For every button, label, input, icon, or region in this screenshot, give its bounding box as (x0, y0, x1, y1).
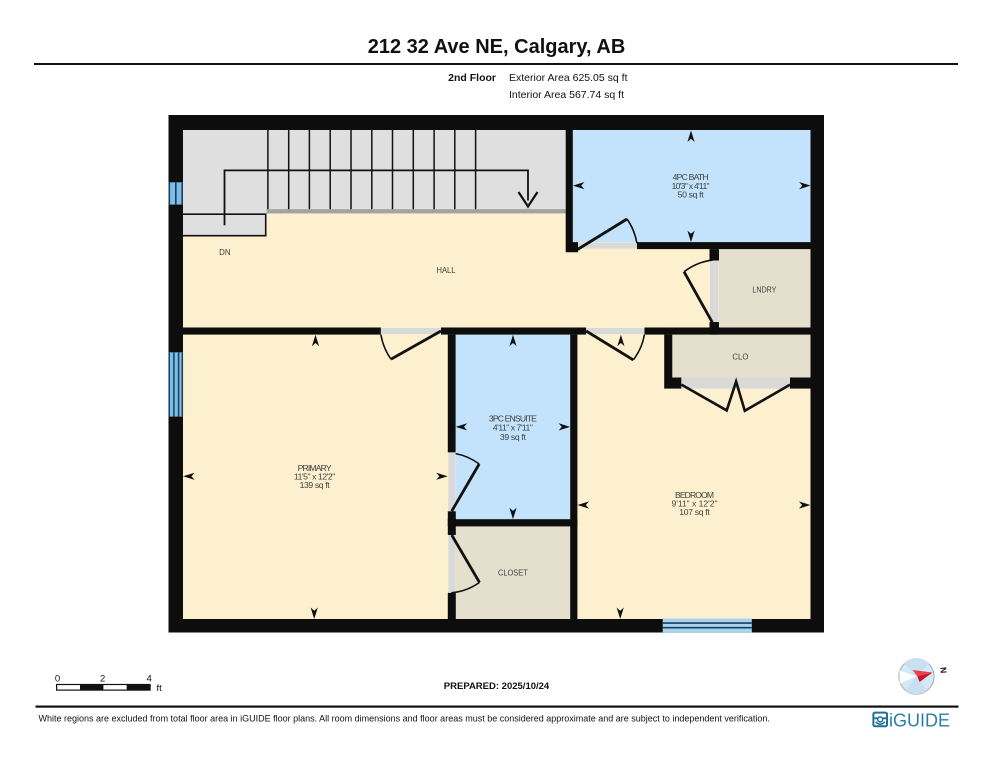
svg-text:2: 2 (100, 674, 105, 685)
svg-text:N: N (938, 667, 948, 674)
svg-text:iGUIDE: iGUIDE (889, 711, 950, 731)
svg-text:4: 4 (147, 674, 152, 685)
svg-text:White regions are excluded fro: White regions are excluded from total fl… (39, 714, 770, 724)
svg-text:PREPARED: 2025/10/24: PREPARED: 2025/10/24 (444, 681, 550, 692)
svg-text:0: 0 (55, 674, 60, 685)
svg-text:50 sq ft: 50 sq ft (678, 189, 705, 199)
svg-text:HALL: HALL (437, 265, 456, 275)
svg-text:CLOSET: CLOSET (498, 567, 528, 577)
svg-text:DN: DN (219, 247, 231, 257)
svg-text:139 sq ft: 139 sq ft (300, 480, 331, 490)
svg-text:ft: ft (157, 683, 163, 694)
svg-text:39 sq ft: 39 sq ft (500, 432, 527, 442)
svg-text:107 sq ft: 107 sq ft (679, 507, 710, 517)
svg-text:LNDRY: LNDRY (752, 284, 776, 294)
svg-text:CLO: CLO (732, 352, 748, 362)
